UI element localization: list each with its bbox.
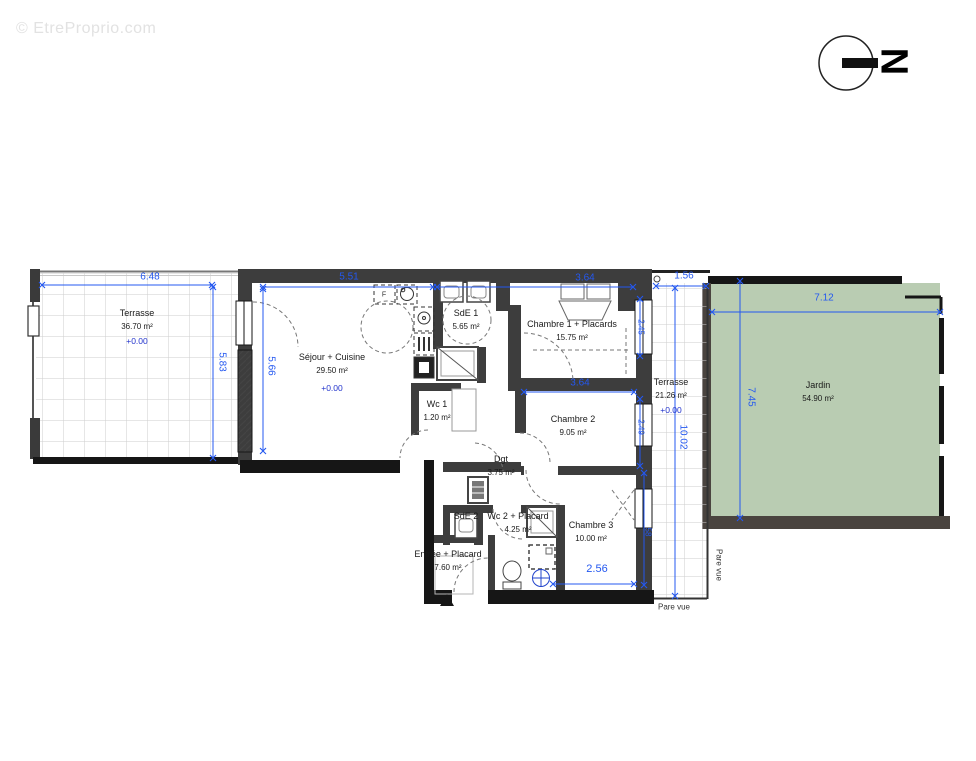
floorplan-page: © EtreProprio.com N Terrasse 36.70 m² +0… <box>0 0 976 761</box>
dim-sejour-depth: 5.66 <box>266 356 277 375</box>
dim-terrace1-depth: 5.83 <box>217 352 228 371</box>
room-label-wc-1: Wc 1 1.20 m² <box>423 397 450 425</box>
room-name: Chambre 2 <box>551 412 596 426</box>
room-name: Wc 1 <box>423 397 450 411</box>
room-label-sde-1: SdE 1 5.65 m² <box>452 306 479 334</box>
north-letter: N <box>872 45 915 79</box>
room-name: Jardin <box>802 378 834 392</box>
room-area: 15.75 m² <box>527 331 617 345</box>
room-name: Dgt <box>487 452 514 466</box>
room-label-entree: Entrée + Placard 7.60 m² <box>414 547 481 575</box>
dim-chambre1-width: 3.64 <box>575 273 594 284</box>
room-name: SdE 2 <box>454 509 479 523</box>
fridge-label: F <box>382 292 386 299</box>
room-name: Chambre 1 + Placards <box>527 317 617 331</box>
room-name: Entrée + Placard <box>414 547 481 561</box>
room-name: Terrasse <box>654 375 689 389</box>
room-name: Terrasse <box>120 306 155 320</box>
dim-terrace1-width: 6.48 <box>140 272 159 283</box>
pare-vue-label-side: Pare vue <box>715 549 724 581</box>
room-area: 4.25 m² <box>487 523 548 537</box>
room-label-chambre-1: Chambre 1 + Placards 15.75 m² <box>527 317 617 345</box>
room-level: +0.00 <box>120 334 155 348</box>
room-area: 3.75 m² <box>487 466 514 480</box>
room-area: 21.26 m² <box>654 389 689 403</box>
room-label-sejour-cuisine: Séjour + Cuisine 29.50 m² +0.00 <box>299 350 365 395</box>
dim-sejour-width: 5.51 <box>339 272 358 283</box>
kitchen-fixtures <box>374 285 434 378</box>
dim-chambre2-width: 3.64 <box>570 378 589 389</box>
room-area: 29.50 m² <box>299 364 365 378</box>
room-name: Chambre 3 <box>569 518 614 532</box>
terrace-1-tiles <box>36 273 241 458</box>
room-area: 54.90 m² <box>802 392 834 406</box>
room-area: 1.20 m² <box>423 411 450 425</box>
room-level: +0.00 <box>654 403 689 417</box>
room-label-dgt: Dgt 3.75 m² <box>487 452 514 480</box>
room-label-chambre-3: Chambre 3 10.00 m² <box>569 518 614 546</box>
watermark: © EtreProprio.com <box>16 20 156 38</box>
dim-window-chambre1: 2.45 <box>637 319 646 335</box>
room-area: 7.60 m² <box>414 561 481 575</box>
room-label-jardin: Jardin 54.90 m² <box>802 378 834 406</box>
dim-terrace2-depth: 10.02 <box>678 424 689 449</box>
room-name: Wc 2 + Placard <box>487 509 548 523</box>
room-name: Séjour + Cuisine <box>299 350 365 364</box>
north-compass-icon <box>819 36 878 90</box>
room-name: SdE 1 <box>452 306 479 320</box>
dim-chambre3-width: 2.56 <box>586 563 607 575</box>
room-label-wc-2: Wc 2 + Placard 4.25 m² <box>487 509 548 537</box>
room-area: 36.70 m² <box>120 320 155 334</box>
dim-jardin-width: 7.12 <box>814 293 833 304</box>
dim-window-chambre2: 2.49 <box>637 419 646 435</box>
dim-jardin-depth: 7.45 <box>746 387 757 406</box>
dim-terrace2-width: 1.56 <box>674 271 693 282</box>
room-label-sde-2: SdE 2 <box>454 509 479 523</box>
room-level: +0.00 <box>299 381 365 395</box>
drain-symbol <box>533 570 550 587</box>
pare-vue-label-bottom: Pare vue <box>658 603 690 612</box>
room-area: 5.65 m² <box>452 320 479 334</box>
dim-window-chambre3: 58 <box>644 528 653 537</box>
room-label-terrasse-1: Terrasse 36.70 m² +0.00 <box>120 306 155 348</box>
room-area: 9.05 m² <box>551 426 596 440</box>
room-label-terrasse-2: Terrasse 21.26 m² +0.00 <box>654 375 689 417</box>
room-label-chambre-2: Chambre 2 9.05 m² <box>551 412 596 440</box>
room-area: 10.00 m² <box>569 532 614 546</box>
bedroom1-furniture <box>559 284 611 320</box>
